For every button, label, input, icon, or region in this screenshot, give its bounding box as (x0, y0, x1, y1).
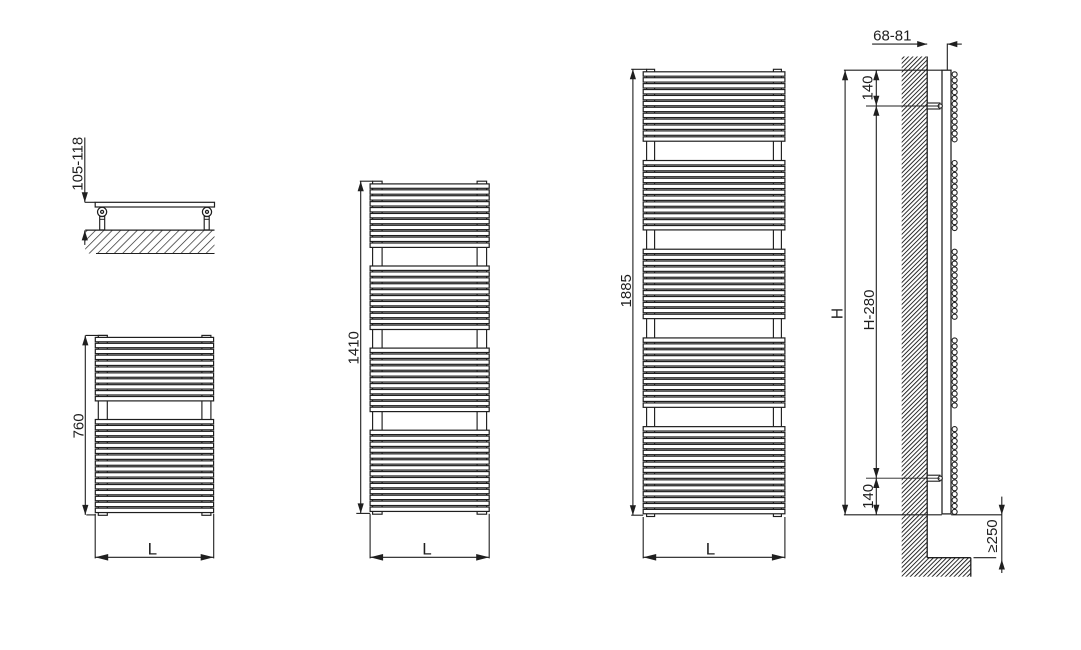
svg-text:140: 140 (860, 484, 877, 509)
svg-text:1410: 1410 (346, 331, 363, 364)
svg-text:68-81: 68-81 (873, 27, 911, 44)
svg-text:H: H (830, 308, 847, 319)
svg-text:760: 760 (70, 413, 87, 438)
svg-text:L: L (706, 540, 715, 559)
svg-text:≥250: ≥250 (984, 519, 1001, 552)
svg-text:105-118: 105-118 (70, 137, 87, 191)
svg-text:140: 140 (860, 75, 877, 100)
svg-text:H-280: H-280 (861, 290, 878, 331)
svg-text:L: L (422, 540, 431, 559)
svg-text:1885: 1885 (618, 274, 635, 307)
svg-text:L: L (148, 540, 157, 559)
